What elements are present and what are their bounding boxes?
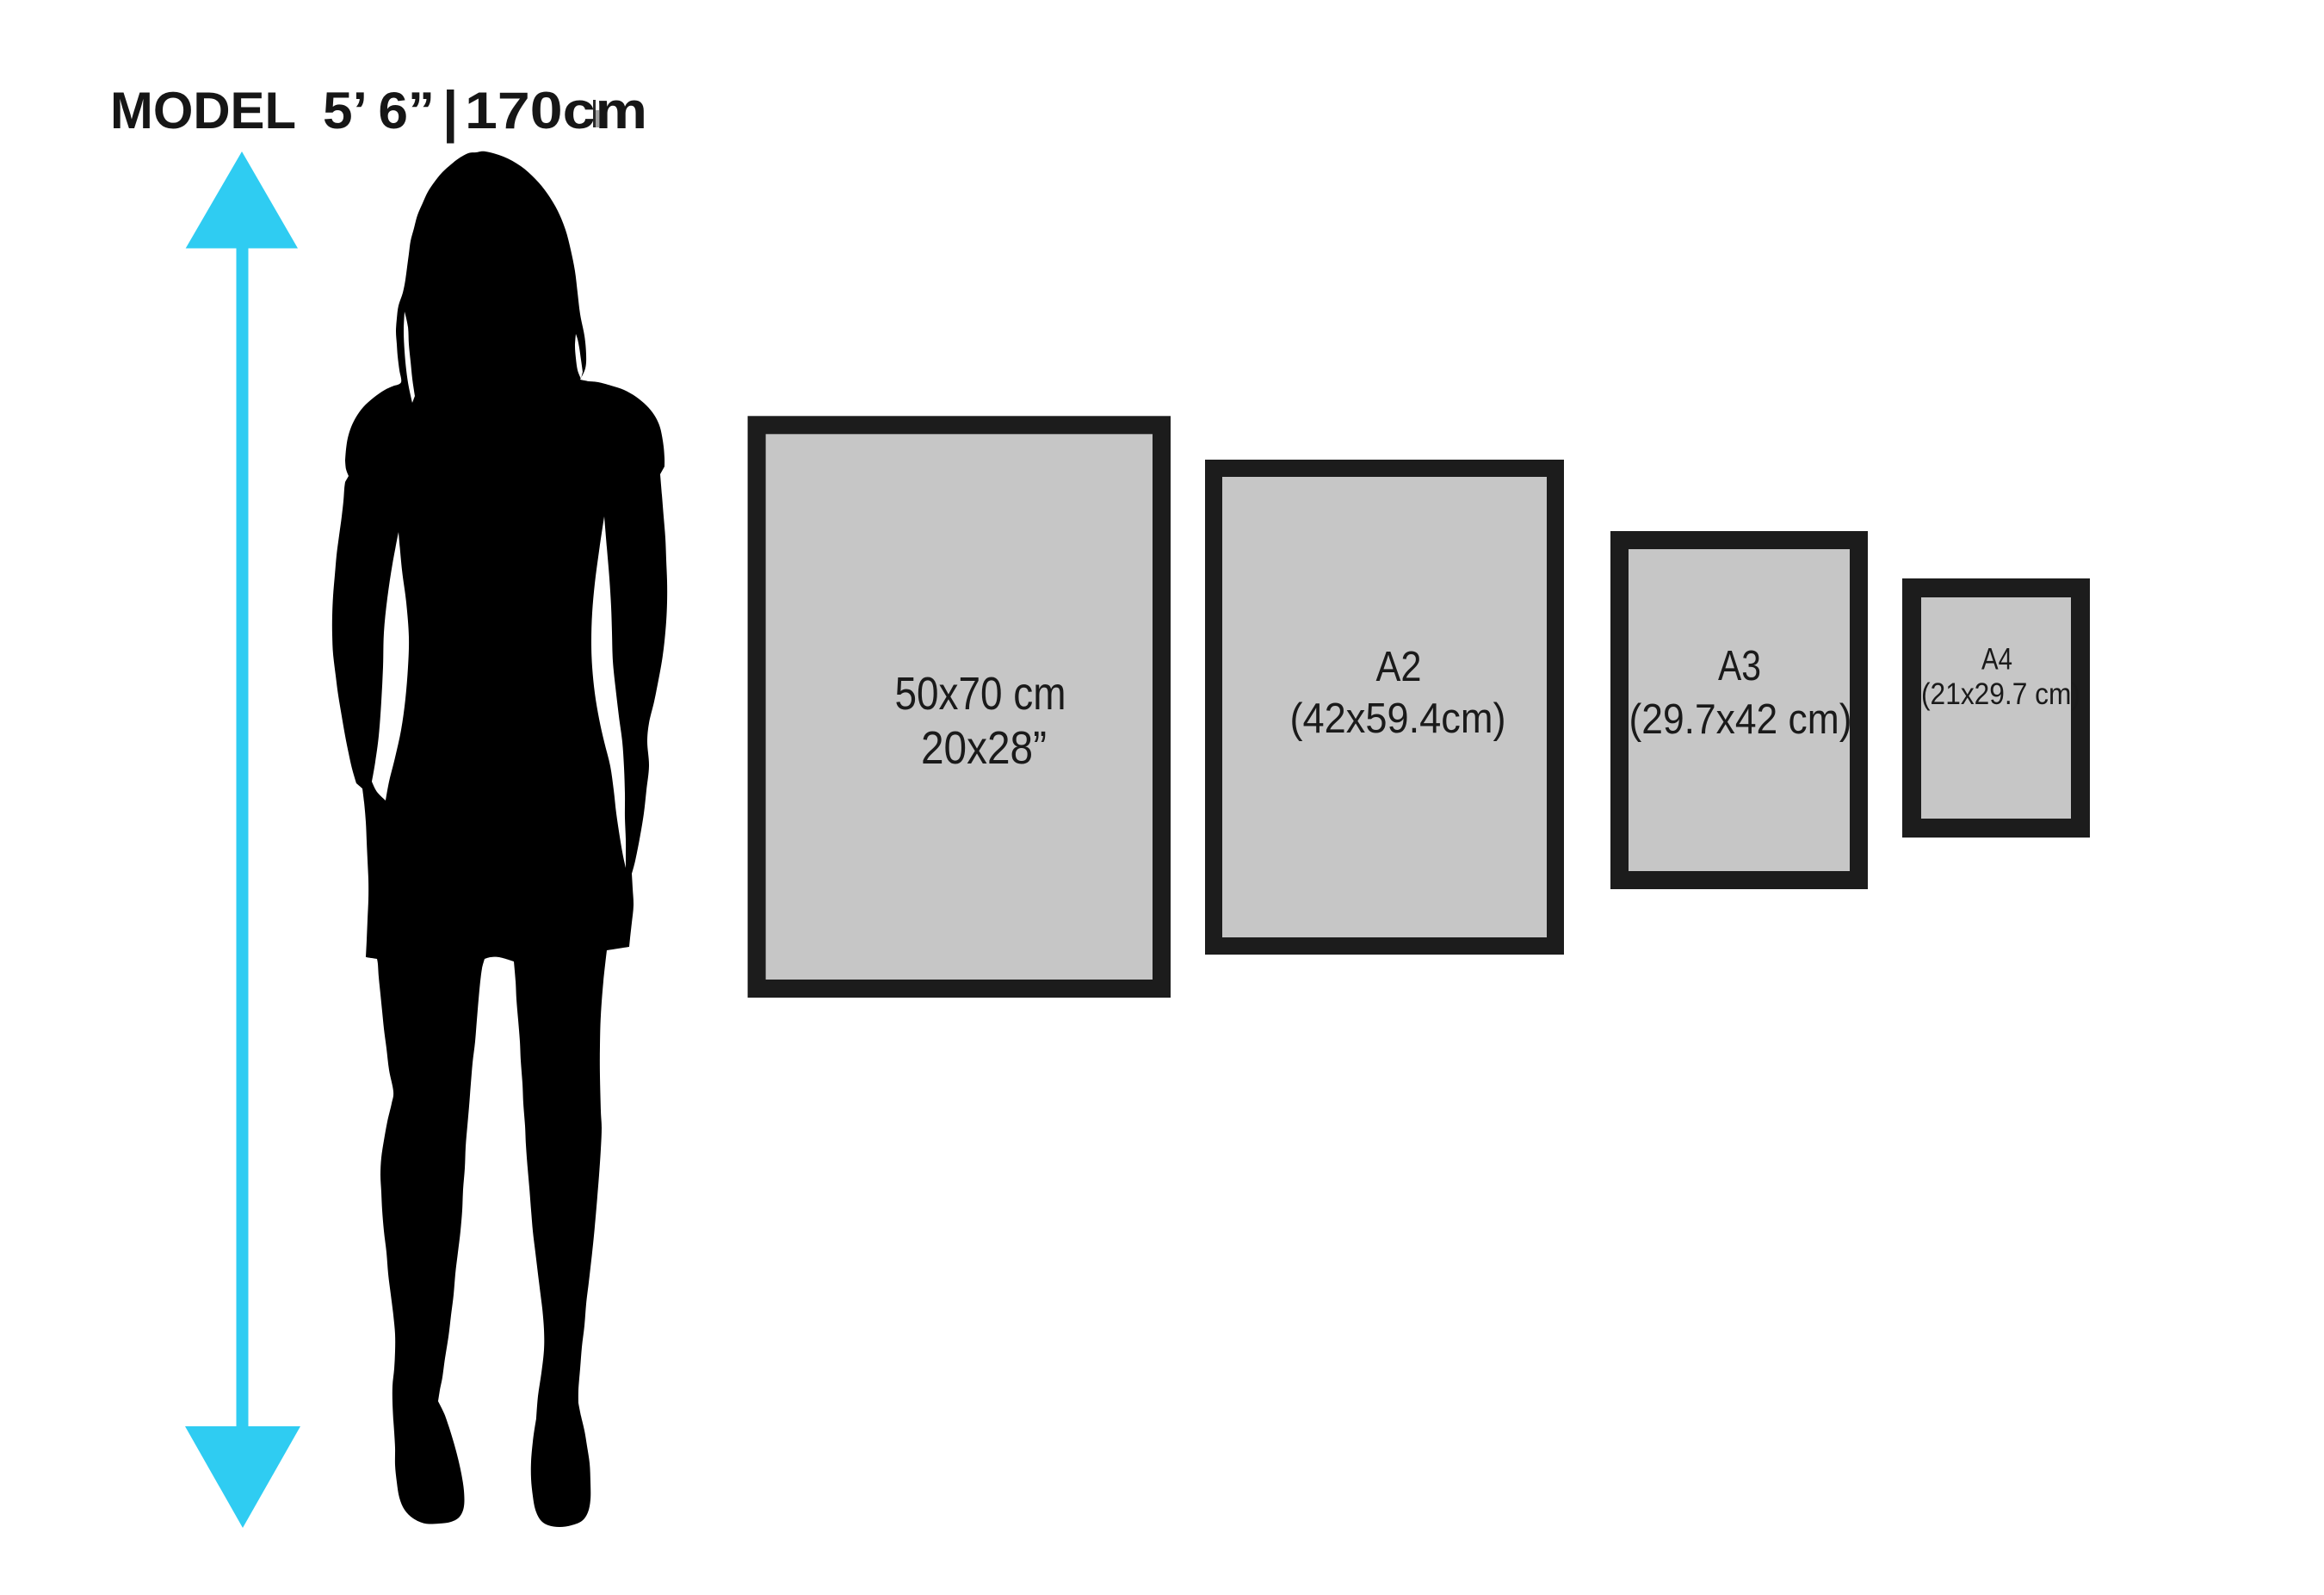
svg-text:|: | xyxy=(442,79,458,145)
svg-text:MODEL: MODEL xyxy=(110,82,296,139)
svg-text:5’ 6”: 5’ 6” xyxy=(323,82,435,139)
svg-text:(21x29.7 cm): (21x29.7 cm) xyxy=(1921,677,2080,711)
svg-text:50x70 cm: 50x70 cm xyxy=(895,668,1066,720)
svg-text:A3: A3 xyxy=(1718,643,1761,689)
svg-text:A2: A2 xyxy=(1376,644,1422,690)
svg-text:170cm: 170cm xyxy=(465,82,647,139)
svg-text:(29.7x42 cm): (29.7x42 cm) xyxy=(1629,696,1852,743)
svg-text:(42x59.4cm): (42x59.4cm) xyxy=(1290,695,1506,742)
svg-text:20x28”: 20x28” xyxy=(921,722,1047,774)
svg-text:A4: A4 xyxy=(1981,643,2012,677)
